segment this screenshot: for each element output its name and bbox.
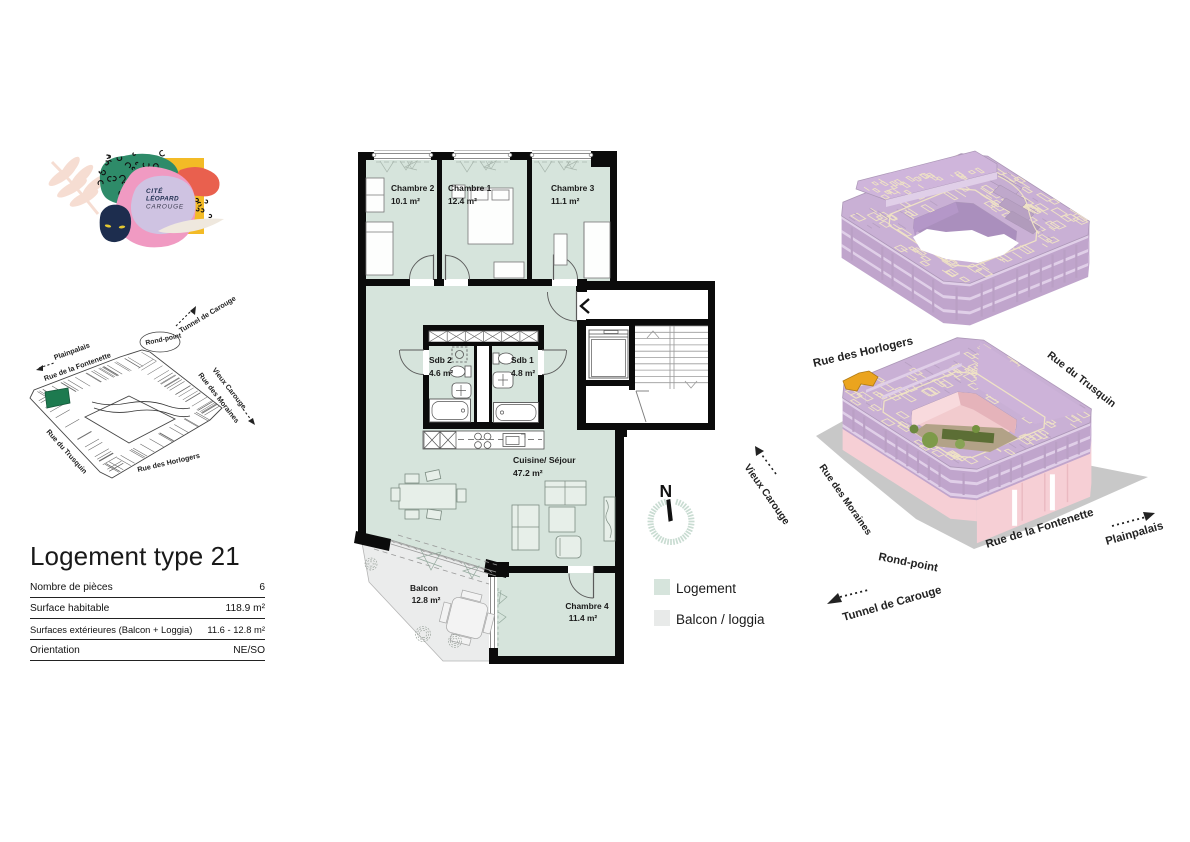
svg-text:Chambre 2: Chambre 2 [391, 183, 435, 193]
svg-text:47.2 m²: 47.2 m² [513, 468, 543, 478]
svg-text:N: N [660, 481, 673, 501]
svg-text:Balcon / loggia: Balcon / loggia [676, 612, 765, 627]
svg-text:Chambre 3: Chambre 3 [551, 183, 595, 193]
svg-text:Plainpalais: Plainpalais [1104, 520, 1165, 548]
svg-text:11.4 m²: 11.4 m² [569, 613, 598, 623]
svg-text:4.6 m²: 4.6 m² [429, 368, 453, 378]
svg-text:Sdb 1: Sdb 1 [511, 355, 534, 365]
svg-text:Tunnel de Carouge: Tunnel de Carouge [841, 584, 943, 624]
svg-text:Vieux Carouge: Vieux Carouge [742, 462, 792, 527]
svg-text:Cuisine/ Séjour: Cuisine/ Séjour [513, 455, 576, 465]
svg-text:LÉOPARD: LÉOPARD [146, 194, 179, 203]
svg-text:Rond-point: Rond-point [877, 551, 939, 574]
svg-text:Balcon: Balcon [410, 583, 438, 593]
svg-text:11.1 m²: 11.1 m² [551, 196, 580, 206]
svg-text:Rond-point: Rond-point [145, 332, 183, 347]
svg-text:Tunnel de Carouge: Tunnel de Carouge [177, 294, 237, 335]
svg-text:CITÉ: CITÉ [146, 186, 163, 195]
svg-text:Chambre 1: Chambre 1 [448, 183, 492, 193]
svg-text:12.4 m²: 12.4 m² [448, 196, 477, 206]
svg-text:10.1 m²: 10.1 m² [391, 196, 420, 206]
svg-text:Sdb 2: Sdb 2 [429, 355, 452, 365]
svg-text:4.8 m²: 4.8 m² [511, 368, 535, 378]
svg-text:Logement: Logement [676, 581, 736, 596]
svg-text:CAROUGE: CAROUGE [146, 204, 184, 211]
svg-text:12.8 m²: 12.8 m² [412, 595, 441, 605]
svg-text:Chambre 4: Chambre 4 [565, 601, 609, 611]
